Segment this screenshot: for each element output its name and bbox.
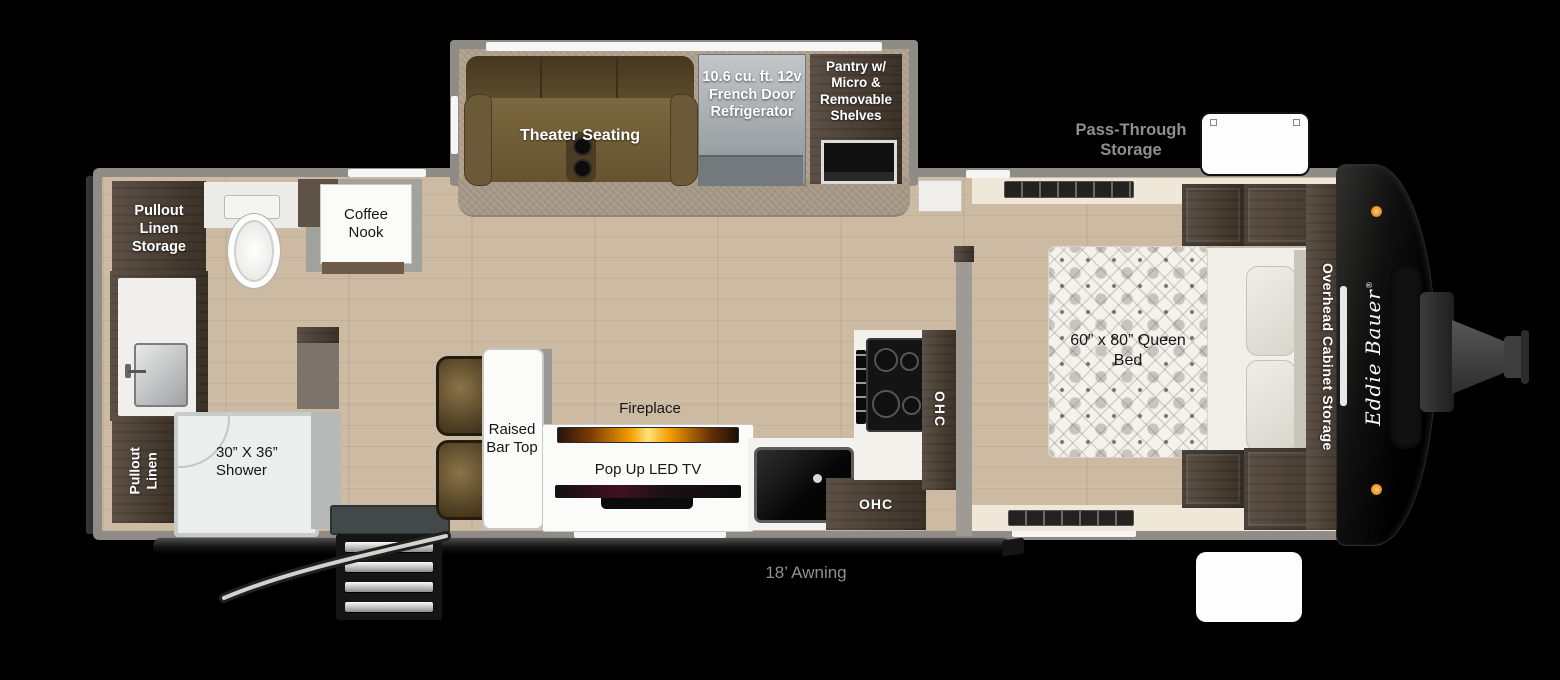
bedroom-vent-top <box>1004 181 1134 198</box>
hitch-jack-box <box>1420 292 1454 412</box>
rv-floorplan: Theater Seating 10.6 cu. ft. 12v French … <box>0 0 1560 680</box>
refrigerator-label: 10.6 cu. ft. 12v French Door Refrigerato… <box>700 69 804 122</box>
pantry: Pantry w/ Micro & Removable Shelves <box>810 54 902 184</box>
awning-end-cap <box>1002 537 1024 556</box>
kitchen-bedroom-wall <box>956 246 972 536</box>
theater-backrest <box>466 56 694 104</box>
overhead-cabinet-storage-label: Overhead Cabinet Storage <box>1320 263 1336 451</box>
window-top-left <box>348 169 426 177</box>
kitchen-wall-cap <box>954 246 974 262</box>
tv-cabinet: Pop Up LED TV <box>542 424 754 532</box>
vanity-sink <box>134 343 188 407</box>
burner <box>900 352 919 371</box>
hitch-tongue <box>1452 320 1510 394</box>
toilet-bowl <box>227 213 281 289</box>
burner <box>874 348 898 372</box>
top-wall-cabinet <box>918 180 962 212</box>
shower: 30” X 36” Shower <box>174 412 319 537</box>
ohc-upper-label: OHC <box>932 391 948 428</box>
pillow <box>1246 266 1296 356</box>
cooktop-controls <box>856 350 866 424</box>
bedroom-corner-cabinet-top <box>1182 184 1244 246</box>
hitch-handle <box>1521 330 1529 384</box>
cooktop <box>866 338 926 432</box>
coffee-nook: Coffee Nook <box>320 184 412 264</box>
brand-registered-mark: ® <box>1365 280 1374 289</box>
fireplace-label: Fireplace <box>573 400 727 418</box>
tv-screen <box>555 485 741 498</box>
door-latch <box>1293 119 1300 126</box>
faucet-spout <box>128 370 146 373</box>
awning-label: 18’ Awning <box>731 563 881 584</box>
brand-label: Eddie Bauer <box>1361 289 1385 426</box>
ohc-lower-label: OHC <box>859 496 893 512</box>
pantry-label: Pantry w/ Micro & Removable Shelves <box>818 59 894 125</box>
brand-logo: Eddie Bauer® <box>1338 250 1408 455</box>
ohc-lower: OHC <box>826 478 926 530</box>
ohc-upper: OHC <box>922 330 958 490</box>
refrigerator-drawer <box>699 155 803 186</box>
pullout-linen-label: Pullout Linen <box>127 439 161 502</box>
pullout-linen-cabinet: Pullout Linen <box>112 418 175 523</box>
pass-through-door-bottom <box>1196 552 1302 622</box>
pass-through-door-top <box>1200 112 1310 176</box>
burner <box>902 396 921 415</box>
bathroom-wall <box>297 327 339 409</box>
slideout-rear-window <box>486 42 882 51</box>
theater-back-divider <box>616 58 618 102</box>
door-latch <box>1210 119 1217 126</box>
slideout-side-window <box>451 96 458 154</box>
theater-seating: Theater Seating <box>464 54 696 184</box>
pillow <box>1246 360 1296 452</box>
shower-label: 30” X 36” Shower <box>216 444 302 481</box>
burner <box>872 390 900 418</box>
marker-light <box>1371 206 1382 217</box>
pullout-linen-storage-cabinet: Pullout Linen Storage <box>112 181 206 279</box>
bedroom-vent-bottom <box>1008 510 1134 526</box>
marker-light <box>1371 484 1382 495</box>
queen-bed-mattress: 60” x 80” Queen Bed <box>1048 246 1208 458</box>
coffee-nook-label: Coffee Nook <box>335 185 397 263</box>
cupholder <box>573 159 592 178</box>
tv-base <box>601 498 693 509</box>
faucet-dot <box>813 474 822 483</box>
pullout-linen-storage-label: Pullout Linen Storage <box>119 181 199 279</box>
refrigerator: 10.6 cu. ft. 12v French Door Refrigerato… <box>698 54 806 186</box>
window-top-mid <box>966 170 1010 178</box>
tv-label: Pop Up LED TV <box>543 461 753 479</box>
coffee-nook-shelf <box>322 262 404 274</box>
raised-bar-top: Raised Bar Top <box>482 348 544 530</box>
queen-bed-label: 60” x 80” Queen Bed <box>1068 331 1188 370</box>
bathroom-wall-cap <box>297 327 339 343</box>
bedroom-corner-cabinet-bottom <box>1182 450 1244 508</box>
microwave <box>821 140 897 184</box>
raised-bar-top-label: Raised Bar Top <box>480 350 544 528</box>
fireplace <box>557 427 739 443</box>
pass-through-storage-label: Pass-Through Storage <box>1056 120 1206 160</box>
theater-back-divider <box>540 58 542 102</box>
step-handrail <box>210 528 460 618</box>
theater-seating-label: Theater Seating <box>464 126 696 146</box>
